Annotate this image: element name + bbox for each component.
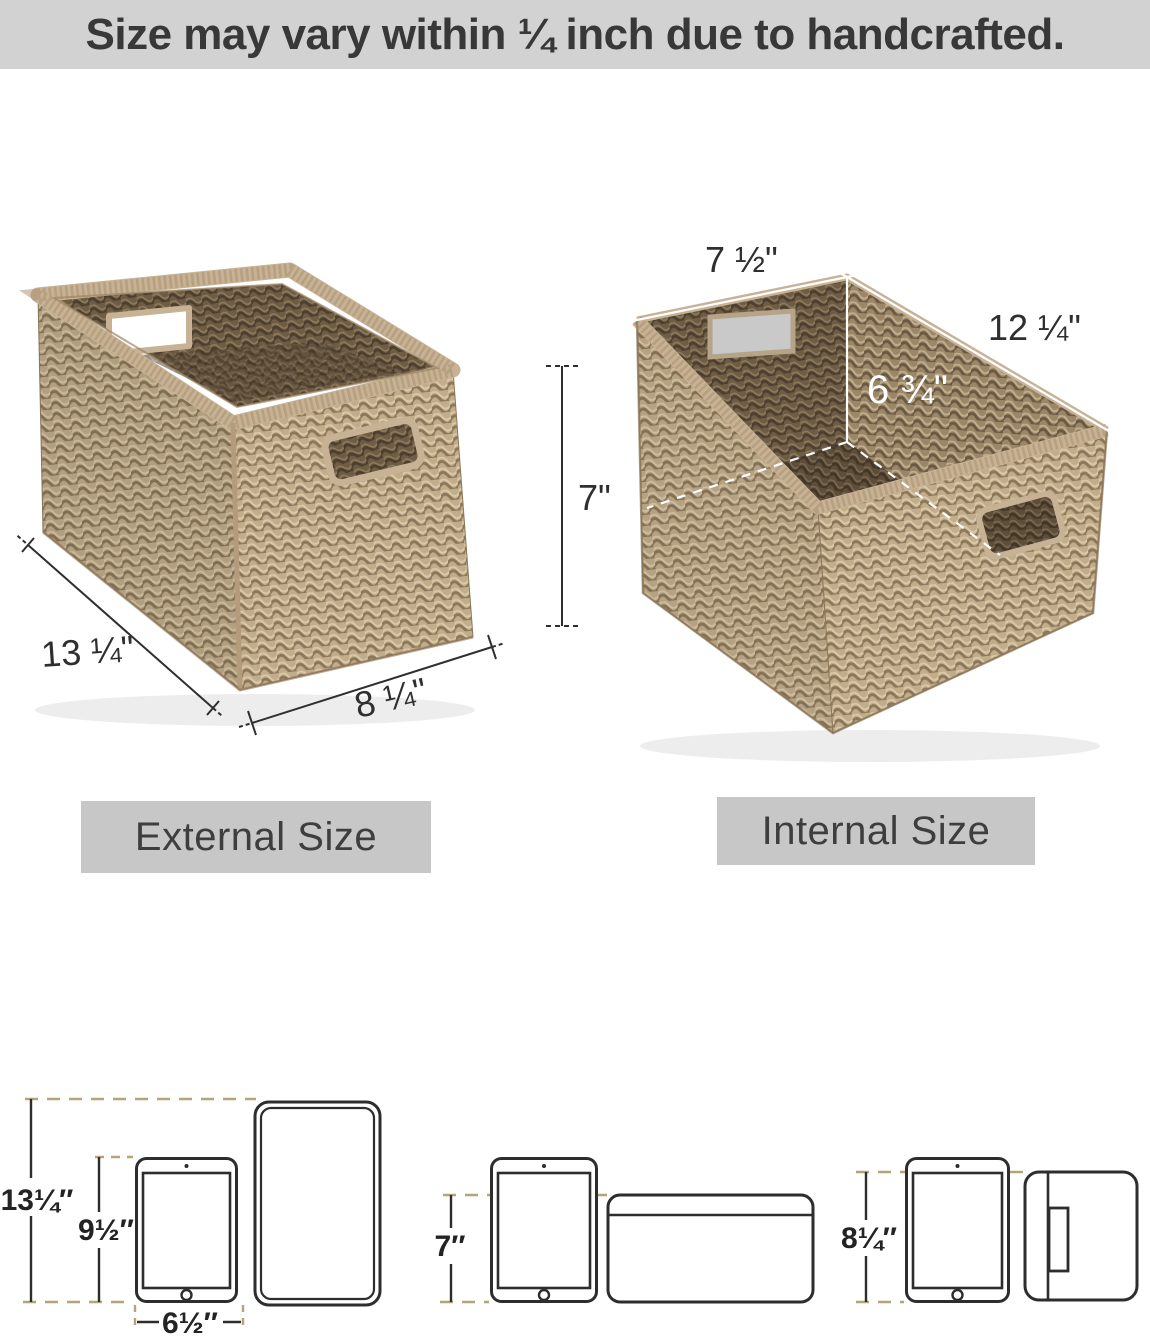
internal-size-label: Internal Size: [717, 797, 1035, 865]
comparison-right-height-label: 8¼″: [841, 1222, 897, 1255]
product-dimension-image: Size may vary within ¼ inch due to handc…: [0, 0, 1150, 1339]
comparison-overall-height-label: 13¼″: [1, 1184, 74, 1217]
external-basket-photo: 7" 13 ¼" 8 ¼": [0, 260, 620, 740]
external-length-dim-label: 13 ¼": [40, 628, 135, 675]
size-disclaimer-text: Size may vary within ¼ inch due to handc…: [86, 10, 1065, 60]
tablet-outline-icon: [907, 1159, 1009, 1302]
external-size-label-text: External Size: [135, 815, 377, 860]
basket-outline-icon: [1025, 1172, 1137, 1300]
internal-basket-photo: 7 ½" 12 ¼" 6 ¾": [620, 230, 1150, 790]
tablet-outline-icon: [492, 1159, 597, 1302]
size-disclaimer-banner: Size may vary within ¼ inch due to handc…: [0, 0, 1150, 69]
comparison-right-diagram: [907, 1159, 1138, 1302]
basket-outline-icon: [608, 1195, 813, 1302]
basket-shadow: [640, 730, 1100, 762]
comparison-left-diagram: [137, 1102, 381, 1305]
internal-size-label-text: Internal Size: [762, 809, 991, 854]
internal-depth-dim-label: 6 ¾": [867, 368, 948, 412]
external-height-dim-label: 7": [578, 477, 611, 518]
tablet-outline-icon: [137, 1159, 237, 1302]
comparison-tablet-width-label: 6½″: [162, 1307, 218, 1339]
internal-length-dim-label: 12 ¼": [988, 307, 1081, 348]
internal-width-dim-label: 7 ½": [705, 239, 778, 280]
size-comparison-diagrams: 13¼″ 9½″ 6½″ 7″ 8¼″: [0, 1080, 1150, 1339]
comparison-middle-diagram: [492, 1159, 814, 1303]
external-size-label: External Size: [81, 801, 431, 873]
comparison-middle-height-label: 7″: [434, 1230, 465, 1263]
comparison-tablet-height-label: 9½″: [78, 1214, 134, 1247]
basket-outline-icon: [255, 1102, 380, 1305]
